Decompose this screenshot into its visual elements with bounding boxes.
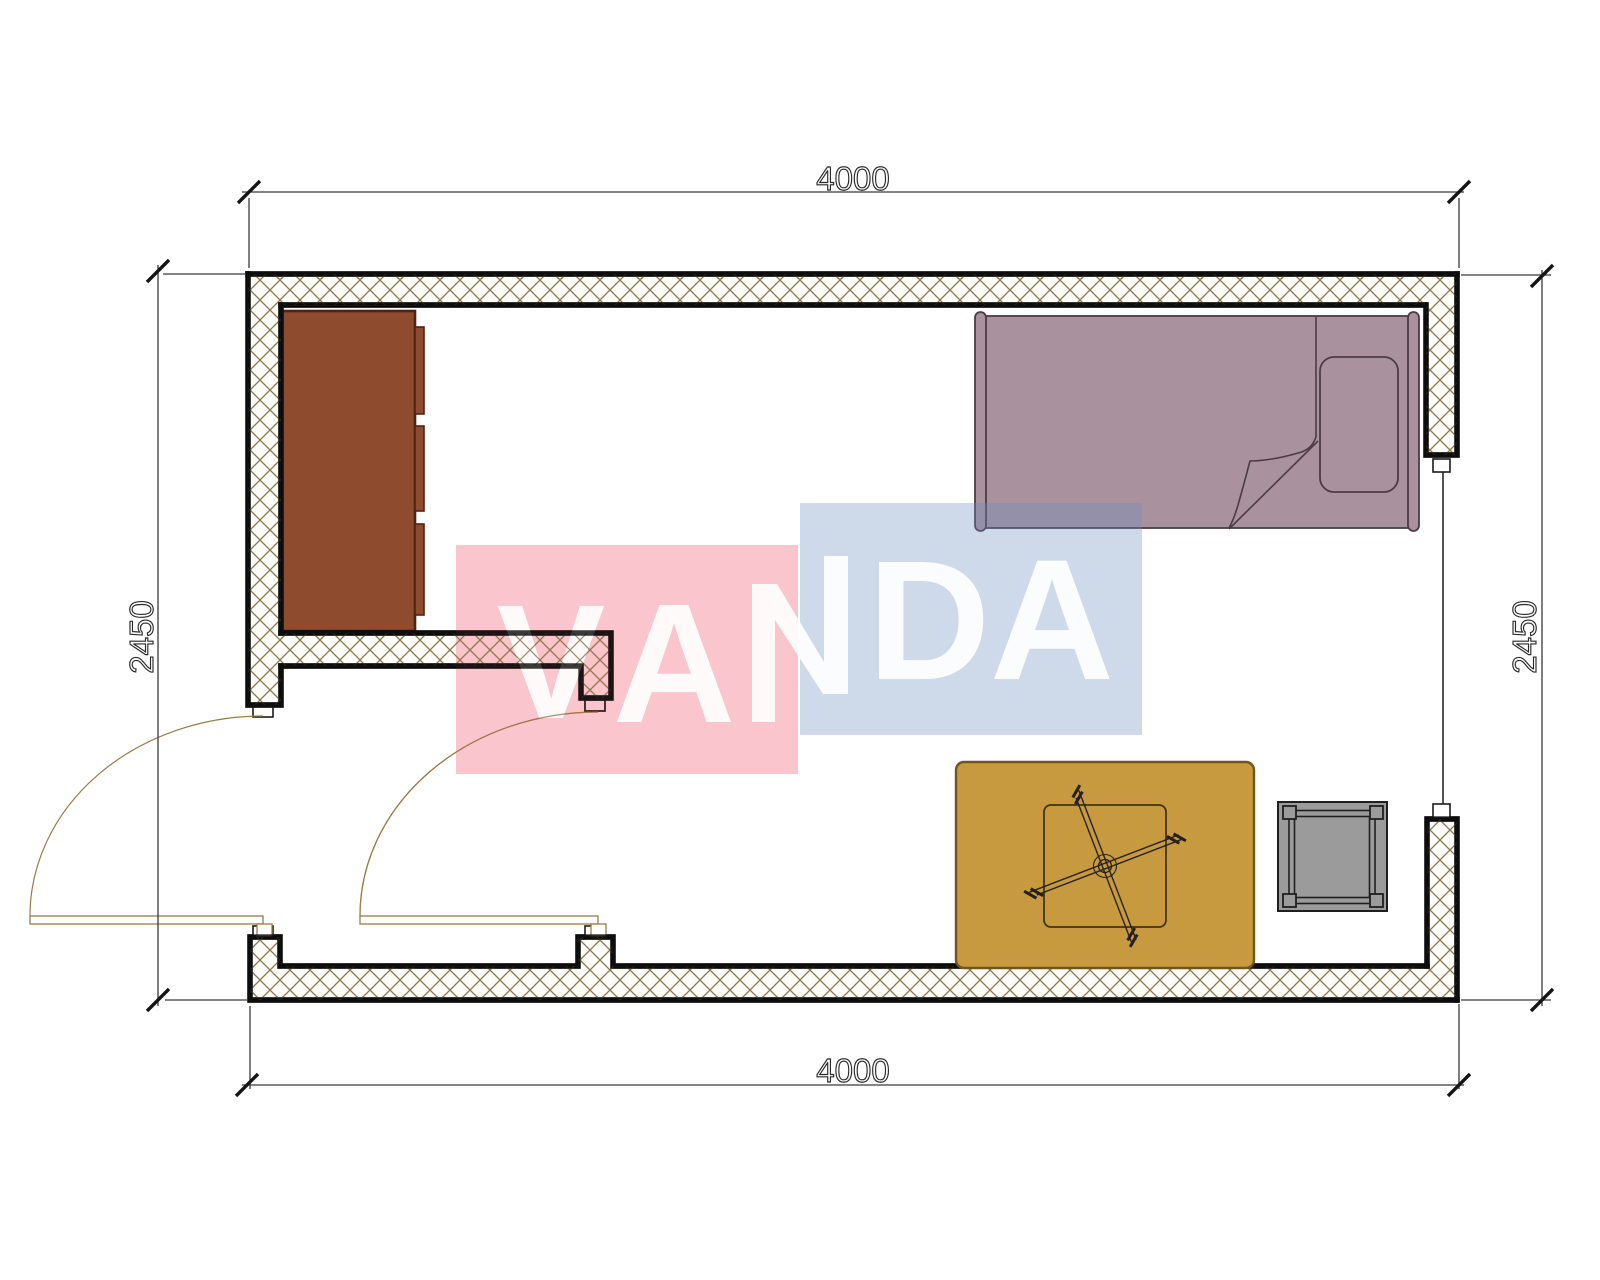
svg-text:A: A <box>990 524 1114 716</box>
svg-text:2450: 2450 <box>123 600 160 673</box>
svg-text:4000: 4000 <box>816 1052 889 1089</box>
svg-text:A: A <box>613 569 736 759</box>
svg-text:D: D <box>868 526 991 716</box>
svg-text:2450: 2450 <box>1506 600 1543 673</box>
svg-text:4000: 4000 <box>816 160 889 197</box>
